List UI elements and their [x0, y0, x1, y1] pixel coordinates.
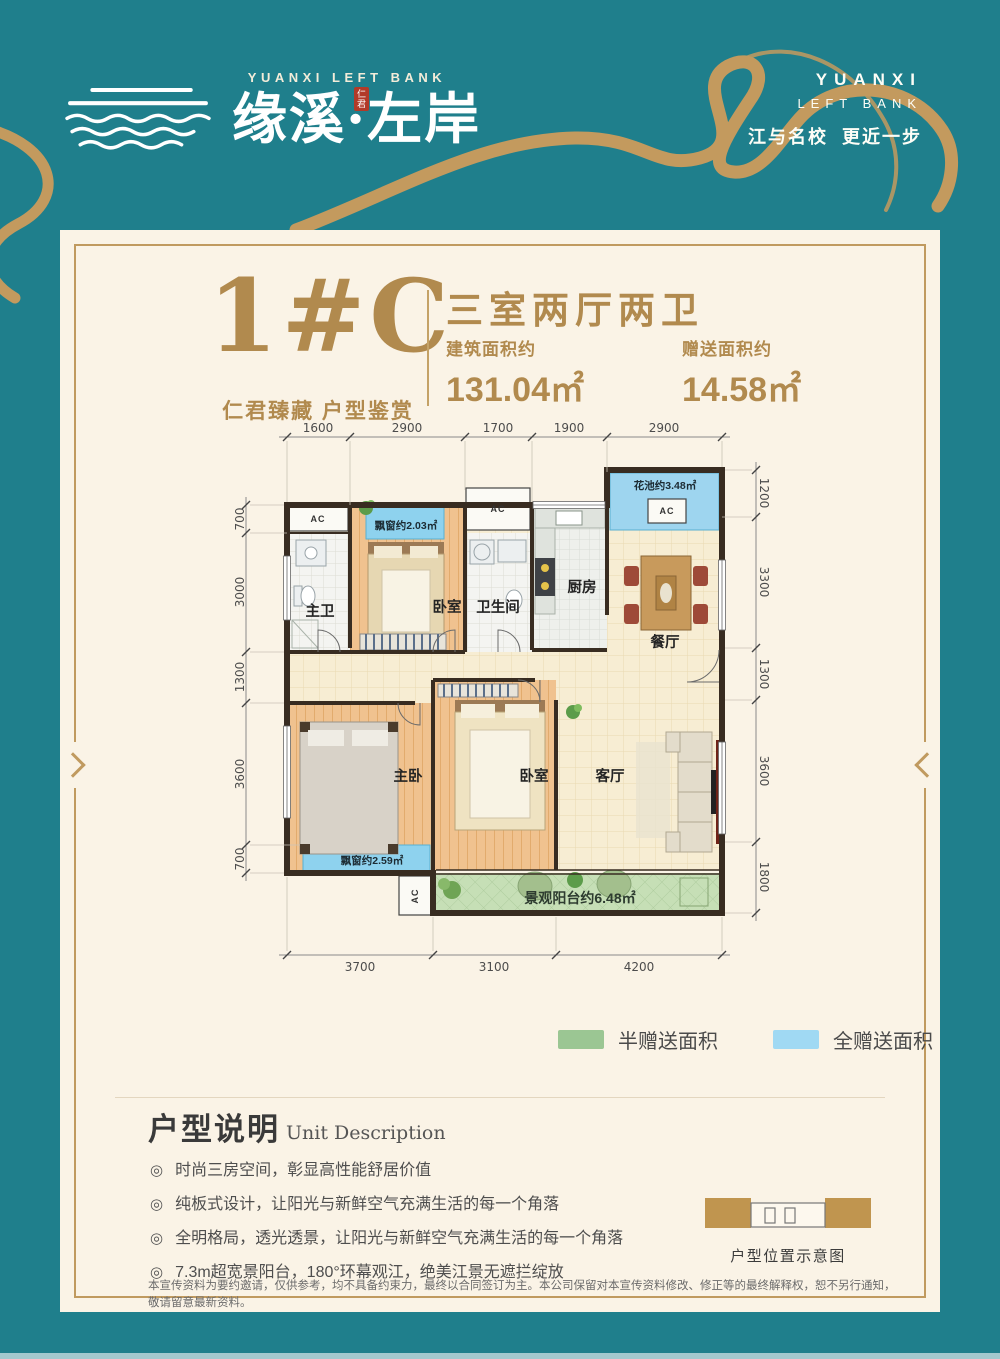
dim-label: 3700 [345, 960, 376, 974]
room-label: 主卧 [394, 767, 423, 785]
dim-label: 3600 [233, 759, 247, 790]
ac-label: AC [660, 506, 675, 516]
dim-label: 700 [233, 508, 247, 531]
bullet-row: ◎ 纯板式设计，让阳光与新鲜空气充满生活的每一个角落 [150, 1190, 623, 1214]
brand-name-en: YUANXI LEFT BANK [232, 70, 462, 85]
unit-position-graphic [703, 1194, 873, 1234]
bullet-icon: ◎ [150, 1195, 163, 1213]
bullet-icon: ◎ [150, 1161, 163, 1179]
bullet-text: 时尚三房空间，彰显高性能舒居价值 [175, 1156, 431, 1180]
heading-divider [427, 290, 429, 406]
brand-logo: YUANXI LEFT BANK 缘溪·左岸 仁君 [62, 70, 481, 170]
built-area: 建筑面积约 131.04㎡ [446, 335, 584, 411]
legend-swatch-blue [773, 1030, 819, 1049]
dim-label: 1800 [757, 862, 771, 893]
room-label: 餐厅 [651, 633, 680, 651]
bullet-text: 全明格局，透光透景，让阳光与新鲜空气充满生活的每一个角落 [175, 1224, 623, 1248]
legend-swatch-green [558, 1030, 604, 1049]
description-bullets: ◎ 时尚三房空间，彰显高性能舒居价值 ◎ 纯板式设计，让阳光与新鲜空气充满生活的… [150, 1156, 623, 1292]
floorplan-card: 1#C 仁君臻藏 户型鉴赏 三室两厅两卫 建筑面积约 131.04㎡ 赠送面积约… [60, 230, 940, 1312]
poster: YUANXI LEFT BANK 缘溪·左岸 仁君 YUANXI LEFT BA… [0, 0, 1000, 1359]
built-area-label: 建筑面积约 [446, 335, 584, 360]
header-right: YUANXI LEFT BANK 江与名校 更近一步 [748, 70, 922, 149]
description-title: 户型说明 [148, 1104, 280, 1149]
legend-label: 半赠送面积 [618, 1025, 718, 1054]
dim-label: 1900 [554, 421, 585, 435]
gift-area-value: 14.58㎡ [682, 362, 801, 411]
built-area-value: 131.04㎡ [446, 362, 584, 411]
ac-label: AC [410, 889, 420, 904]
dim-label: 3600 [757, 756, 771, 787]
legend: 半赠送面积 全赠送面积 [558, 1025, 933, 1054]
area-label: 飘窗约2.03㎡ [375, 519, 438, 532]
gift-area-label: 赠送面积约 [682, 335, 801, 360]
gift-area: 赠送面积约 14.58㎡ [682, 335, 801, 411]
room-label: 卧室 [520, 767, 549, 785]
header-tagline: 江与名校 更近一步 [748, 123, 922, 149]
dim-label: 3100 [479, 960, 510, 974]
dim-label: 1700 [483, 421, 514, 435]
room-label: 卧室 [433, 598, 462, 616]
ac-label: AC [491, 504, 506, 514]
dim-label: 2900 [649, 421, 680, 435]
bottom-strip [0, 1353, 1000, 1359]
unit-type: 三室两厅两卫 [446, 280, 704, 334]
section-divider [115, 1097, 885, 1098]
room-label: 厨房 [568, 578, 597, 596]
area-label: 花池约3.48㎡ [634, 479, 697, 492]
dim-label: 1300 [233, 662, 247, 693]
bullet-row: ◎ 时尚三房空间，彰显高性能舒居价值 [150, 1156, 623, 1180]
area-label: 景观阳台约6.48㎡ [524, 890, 635, 906]
dim-label: 3000 [233, 577, 247, 608]
legend-item-half-gift: 半赠送面积 [558, 1025, 718, 1054]
unit-name: 1#C [208, 264, 453, 369]
dim-label: 1200 [757, 478, 771, 509]
dim-label: 700 [233, 848, 247, 871]
bullet-icon: ◎ [150, 1229, 163, 1247]
floorplan: 1600 2900 1700 1900 2900 700 3000 1300 3… [230, 418, 775, 993]
dim-label: 1600 [303, 421, 334, 435]
ac-label: AC [311, 514, 326, 524]
waves-logo-icon [62, 82, 214, 170]
brand-text: YUANXI LEFT BANK 缘溪·左岸 仁君 [232, 70, 481, 150]
dim-label: 2900 [392, 421, 423, 435]
header-right-en1: YUANXI [748, 70, 922, 90]
description-title-en: Unit Description [286, 1122, 446, 1144]
dim-label: 4200 [624, 960, 655, 974]
room-label: 主卫 [306, 602, 335, 620]
brand-seal: 仁君 [354, 87, 369, 111]
area-label: 飘窗约2.59㎡ [341, 854, 404, 867]
bullet-text: 纯板式设计，让阳光与新鲜空气充满生活的每一个角落 [175, 1190, 559, 1214]
legend-item-full-gift: 全赠送面积 [773, 1025, 933, 1054]
diagram-label: 户型位置示意图 [703, 1245, 873, 1266]
header-right-en2: LEFT BANK [748, 96, 922, 111]
disclaimer: 本宣传资料为要约邀请，仅供参考，均不具备约束力，最终以合同签订为主。本公司保留对… [148, 1278, 896, 1313]
legend-label: 全赠送面积 [833, 1025, 933, 1054]
dim-label: 3300 [757, 567, 771, 598]
room-label: 卫生间 [476, 598, 520, 616]
dim-label: 1300 [757, 659, 771, 690]
bullet-row: ◎ 全明格局，透光透景，让阳光与新鲜空气充满生活的每一个角落 [150, 1224, 623, 1248]
room-label: 客厅 [595, 767, 625, 785]
unit-position-diagram: 户型位置示意图 [703, 1194, 873, 1266]
